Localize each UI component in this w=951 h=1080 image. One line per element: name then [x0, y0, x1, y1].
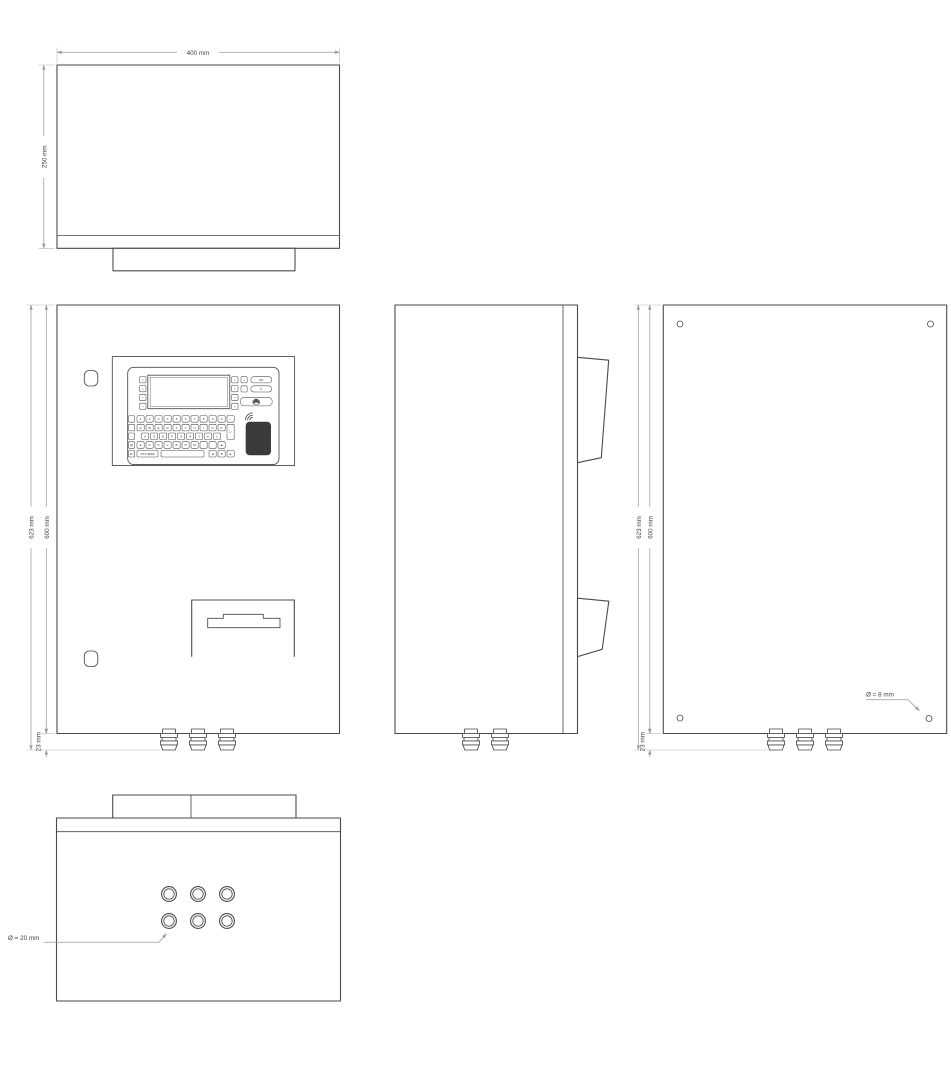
keypad-key-label: H	[189, 434, 191, 438]
keypad-key-label: 5	[176, 417, 178, 421]
keypad-key-label: ,	[203, 443, 204, 447]
keypad-key-label: S	[153, 434, 155, 438]
keypad-key-label: ◄	[211, 452, 214, 456]
dim-back-gland-label-group: 23 mm	[640, 732, 647, 751]
dim-back-body-label-group: 600 mm	[646, 507, 655, 549]
keypad-key-label: .	[212, 443, 213, 447]
dim-back-body-label: 600 mm	[648, 516, 655, 539]
keypad-key-label: <	[234, 405, 236, 409]
dim-back-total-label: 623 mm	[636, 516, 643, 539]
cancel-key-label: X	[260, 387, 262, 391]
bottom-view-body	[57, 818, 341, 1001]
technical-drawing-page: 400 mm 250 mm 623 mm 600 mm 23 mm	[0, 0, 951, 1080]
keypad-key-label: E	[158, 426, 160, 430]
top-view-body	[57, 65, 340, 248]
keypad-key-label: T	[176, 426, 178, 430]
keypad-key-label: W	[148, 426, 151, 430]
rfid-reader-pad	[246, 422, 271, 456]
minus-key-label: -	[244, 388, 245, 392]
top-view-panel-tab	[113, 248, 295, 270]
keypad-key-label: STX-8080	[141, 452, 155, 456]
dim-front-gland-label-group: 23 mm	[36, 732, 43, 751]
keypad-key-label: >	[142, 405, 144, 409]
dim-top-width-label: 400 mm	[187, 50, 210, 57]
keypad-key-label: >	[142, 387, 144, 391]
front-view: 623 mm 600 mm 23 mm + OK - X	[27, 305, 340, 757]
keypad-key-label: 4	[167, 417, 169, 421]
front-view-body	[57, 305, 340, 734]
keypad-key-label: 2	[149, 417, 151, 421]
keypad-key-label: 9	[212, 417, 214, 421]
keypad-key-label: <	[234, 387, 236, 391]
keypad-key-label: <	[234, 378, 236, 382]
dim-front-total-label: 623 mm	[29, 516, 36, 539]
dim-top-depth-label-group: 250 mm	[40, 136, 49, 178]
dim-top-depth-label: 250 mm	[41, 145, 48, 168]
dim-back-gland-label: 23 mm	[640, 732, 647, 751]
keypad-key-label: @	[130, 443, 133, 447]
side-view-body	[395, 305, 578, 734]
side-view	[395, 305, 609, 750]
keypad-key-label: .	[131, 417, 132, 421]
keypad-key-label: ←	[229, 417, 232, 421]
keypad-key-label: >	[142, 396, 144, 400]
keypad-key-label: -	[131, 434, 132, 438]
keypad-key-label: I	[203, 426, 204, 430]
keypad-key-label: P	[221, 426, 223, 430]
dim-front-total-label-group: 623 mm	[27, 507, 36, 549]
keypad-key-label: ▲	[220, 443, 223, 447]
dim-front-body-label: 600 mm	[44, 516, 51, 539]
gland-hole-note-label: Ø = 20 mm	[8, 935, 39, 942]
bottom-view-panel-tabs	[113, 795, 296, 818]
plus-key-label: +	[243, 378, 245, 382]
keypad-key-label: ↵	[229, 430, 232, 434]
keypad-key-label: Y	[185, 426, 187, 430]
keypad-key-label: Fn	[130, 452, 134, 456]
dim-back-total-label-group: 623 mm	[634, 507, 643, 549]
keypad-key-label: 3	[158, 417, 160, 421]
keypad-key-label: X	[149, 443, 151, 447]
keypad-key-label: ,	[131, 426, 132, 430]
keypad-key-label: 8	[203, 417, 205, 421]
keypad-key-label: ►	[229, 452, 232, 456]
keypad-key-label: M	[193, 443, 196, 447]
keypad-key-label: 1	[140, 417, 142, 421]
enclosure-drawing: 400 mm 250 mm 623 mm 600 mm 23 mm	[0, 0, 951, 1080]
keypad-key-label: U	[193, 426, 195, 430]
bottom-view: Ø = 20 mm	[8, 795, 341, 1001]
control-keys: + OK - X	[240, 377, 272, 406]
dim-front-gland-label: 23 mm	[36, 732, 43, 751]
keypad-key-label: N	[184, 443, 186, 447]
keypad-key-label: 6	[185, 417, 187, 421]
keypad-key	[161, 450, 204, 457]
keypad-key-label: Z	[140, 443, 142, 447]
keypad-key-label: >	[142, 378, 144, 382]
keypad-key-label: <	[234, 396, 236, 400]
keypad-key-label: L	[216, 434, 218, 438]
keypad-key-label: 7	[194, 417, 196, 421]
keypad-key-label: F	[171, 434, 173, 438]
keypad-key-label: ▼	[220, 452, 223, 456]
mount-hole-note-label: Ø = 8 mm	[866, 692, 894, 699]
top-view: 400 mm 250 mm	[39, 48, 340, 271]
dim-front-body-label-group: 600 mm	[42, 507, 51, 549]
keypad-key-label: B	[176, 443, 178, 447]
back-view: 623 mm 600 mm 23 mm Ø = 8 mm	[634, 305, 947, 757]
back-view-body	[663, 305, 946, 734]
keypad-key-label: 0	[221, 417, 223, 421]
